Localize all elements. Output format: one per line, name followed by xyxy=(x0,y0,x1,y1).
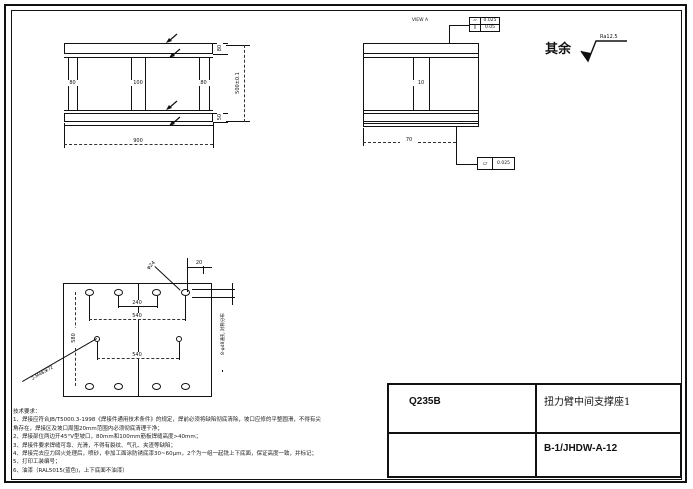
dim-pitch-mid: 540 xyxy=(127,352,147,358)
ext-line xyxy=(213,54,228,55)
ext-line xyxy=(192,297,235,298)
weld-symbol-icon xyxy=(167,116,181,127)
roughness-value: Ra12.5 xyxy=(600,34,628,40)
dim-edge: 20 xyxy=(192,260,206,266)
tech-requirements: 技术要求： 1、焊接应符合JB/T5000.3-1998《焊接件通用技术条件》的… xyxy=(13,408,375,475)
fcf-value: 0.05 xyxy=(481,25,499,31)
fcf-symbol: ▱ xyxy=(470,18,481,24)
dim-pitch-inner: 240 xyxy=(127,300,147,306)
dim-line xyxy=(118,306,157,307)
weld-symbol-icon xyxy=(164,33,178,44)
dim-line xyxy=(89,319,185,320)
part-name: 扭力臂中间支撑座1 xyxy=(544,393,630,408)
hole xyxy=(152,289,161,296)
dim-height-holes: 580 xyxy=(71,328,77,348)
dim-width: 900 xyxy=(128,138,148,144)
fcf-bottom: ▱ 0.025 xyxy=(477,157,515,170)
dim-line xyxy=(97,358,179,359)
tech-line: 3、焊接件要求焊缝可靠、光滑，不得有裂纹、气孔、夹渣等缺陷； xyxy=(13,442,375,450)
fcf-leader-line xyxy=(449,25,469,26)
hole xyxy=(181,289,190,296)
weld-symbol-icon xyxy=(164,100,178,111)
ext-line xyxy=(226,45,250,46)
ext-line xyxy=(213,123,214,148)
tech-line: 5、打印工装编号； xyxy=(13,458,375,466)
front-rib-line xyxy=(145,57,146,110)
dim-line xyxy=(232,283,233,305)
view-a-web-bottom-line xyxy=(363,110,479,111)
fcf-symbol: ∥ xyxy=(470,25,481,31)
hole xyxy=(181,383,190,390)
fcf-leader-line xyxy=(456,164,477,165)
ext-line xyxy=(187,258,188,292)
dim-view-a-width: 70 xyxy=(400,137,418,143)
view-a-right-edge xyxy=(478,43,479,123)
ext-line xyxy=(185,296,186,321)
holes-note: 8-φ48通孔 对称分布 xyxy=(221,298,227,370)
fcf-top: ▱ 0.025 ∥ 0.05 xyxy=(469,17,500,32)
hole xyxy=(114,383,123,390)
material-value: Q235B xyxy=(409,396,441,407)
hole xyxy=(152,383,161,390)
dim-rib-right: 80 xyxy=(197,80,210,86)
weld-symbol-icon xyxy=(167,48,181,59)
view-a-base-plate xyxy=(363,123,479,127)
front-top-flange xyxy=(64,43,213,54)
dim-view-a-rib: 10 xyxy=(413,80,429,86)
ext-line xyxy=(213,122,228,123)
title-block: Q235B 扭力臂中间支撑座1 B-1/JHDW-A-12 xyxy=(387,383,682,478)
front-web-bottom-line xyxy=(64,110,213,111)
front-base-line xyxy=(64,125,213,126)
drawing-number: B-1/JHDW-A-12 xyxy=(544,443,617,454)
front-web-top-line xyxy=(64,57,213,58)
dim-flange-top: 80 xyxy=(217,43,223,53)
tech-title: 技术要求： xyxy=(13,408,375,416)
view-a-top-flange xyxy=(363,43,479,54)
dim-rib-mid: 100 xyxy=(131,80,145,86)
view-a-label: VIEW A xyxy=(405,18,435,24)
view-a-bottom-flange xyxy=(363,113,479,122)
view-a-rib-line xyxy=(429,57,430,110)
fcf-leader-line xyxy=(456,127,457,164)
flatness-icon: ▱ xyxy=(478,158,493,169)
ext-line xyxy=(192,289,235,290)
dim-line xyxy=(187,267,212,268)
fcf-value: 0.025 xyxy=(481,18,499,24)
hole xyxy=(85,383,94,390)
title-block-divider xyxy=(535,385,537,476)
dim-line-height xyxy=(244,45,245,122)
front-bottom-flange xyxy=(64,113,213,122)
dim-height: 500±0.1 xyxy=(235,69,241,97)
fcf-value: 0.025 xyxy=(493,158,514,169)
hole xyxy=(85,289,94,296)
fcf-leader-line xyxy=(449,25,450,43)
dim-flange-bottom: 50 xyxy=(217,112,223,122)
surface-note-text: 其余 xyxy=(545,38,571,57)
ext-line xyxy=(89,296,90,321)
ext-line xyxy=(226,121,250,122)
ext-line xyxy=(363,128,364,146)
view-a-web-top-line xyxy=(363,57,479,58)
drawing-sheet: 80 100 80 80 50 500±0.1 900 VIEW A xyxy=(0,0,693,489)
ext-line xyxy=(157,296,158,308)
tech-line: 4、焊接完去应力回火处理后，喷砂，非加工面涂防锈底漆30~60μm，2个为一组一… xyxy=(13,450,375,458)
dim-pitch-top: 540 xyxy=(127,313,147,319)
tech-line: 6、油漆（RAL5015(蓝色)，上下底面不油漆） xyxy=(13,467,375,475)
roughness-icon xyxy=(577,38,631,64)
tech-line: 角存在，焊接区及坡口周围20mm范围内必须彻底清理干净； xyxy=(13,425,375,433)
dim-line-width xyxy=(64,144,213,145)
dim-rib-left: 80 xyxy=(66,80,79,86)
title-block-divider xyxy=(389,432,680,434)
tech-line: 1、焊接应符合JB/T5000.3-1998《焊接件通用技术条件》的规定，焊前必… xyxy=(13,416,375,424)
tech-line: 2、焊接部位两边开45°V型坡口，80mm和100mm筋板焊缝高度>40mm； xyxy=(13,433,375,441)
hole xyxy=(114,289,123,296)
ext-line xyxy=(179,342,180,360)
